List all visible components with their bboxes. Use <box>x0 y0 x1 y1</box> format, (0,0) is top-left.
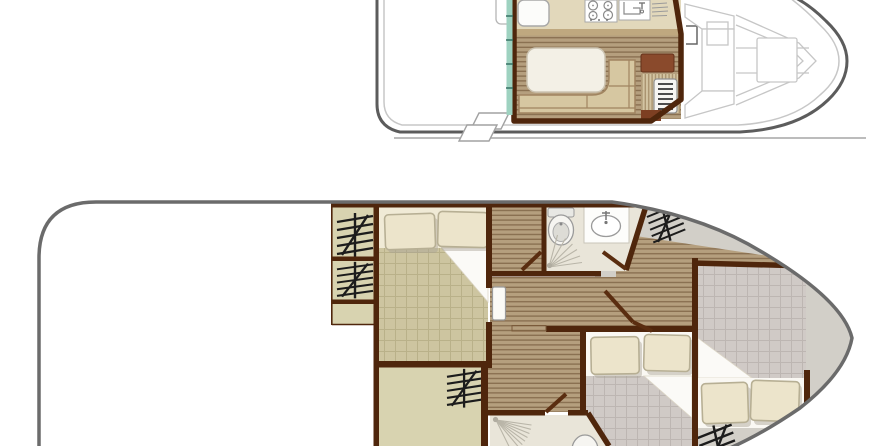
pillow <box>384 213 435 250</box>
stairwell-aft <box>331 204 379 325</box>
pillow <box>438 211 489 247</box>
shower-head <box>547 263 552 268</box>
center-double-cabin <box>586 332 693 446</box>
corridor-floor <box>490 277 697 329</box>
upper-deck-plan <box>377 0 866 141</box>
dining-table <box>527 48 605 92</box>
pillow <box>644 334 691 371</box>
helm-seat <box>641 54 674 72</box>
pillow <box>750 380 799 422</box>
hall-floor <box>492 207 543 273</box>
port-aft-room <box>379 367 483 446</box>
sliding-glass-door <box>507 0 513 115</box>
bow-double-cabin <box>696 266 806 446</box>
bow-hatch <box>757 38 797 82</box>
washbasin <box>584 207 629 243</box>
boat-floorplan-canvas <box>0 0 890 446</box>
pillow <box>701 382 748 424</box>
sink <box>619 0 650 20</box>
pillow <box>591 337 640 375</box>
toilet <box>548 208 574 245</box>
hob-4-burner <box>585 0 617 22</box>
open-door-panel <box>493 287 506 320</box>
corridor-extension-floor <box>487 329 582 412</box>
shower-head <box>493 417 498 422</box>
fridge <box>518 0 549 26</box>
aft-double-cabin <box>379 207 491 362</box>
galley-counter-edge <box>516 29 681 36</box>
lower-deck-plan <box>39 202 860 446</box>
